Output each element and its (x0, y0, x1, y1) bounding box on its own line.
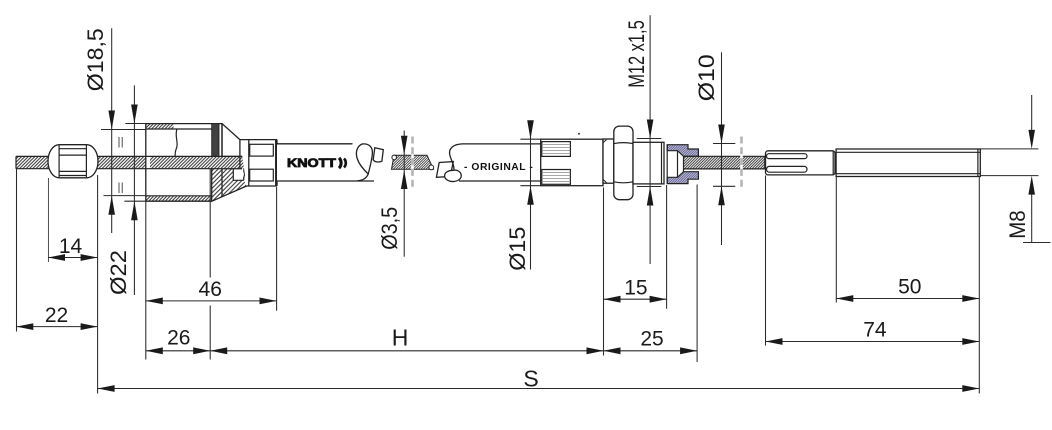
svg-text:S: S (523, 366, 538, 392)
svg-text:Ø10: Ø10 (694, 54, 719, 101)
svg-text:50: 50 (898, 276, 921, 299)
svg-text:Ø3,5: Ø3,5 (377, 207, 402, 250)
svg-text:46: 46 (199, 278, 222, 301)
svg-text:25: 25 (640, 328, 663, 351)
svg-text:22: 22 (45, 304, 68, 327)
svg-text:15: 15 (624, 277, 647, 300)
svg-text:Ø15: Ø15 (505, 227, 530, 271)
svg-text:- ORIGINAL -: - ORIGINAL - (464, 162, 533, 173)
svg-text:Ø18,5: Ø18,5 (83, 28, 108, 91)
svg-text:Ø22: Ø22 (106, 250, 131, 295)
svg-text:M12 x1,5: M12 x1,5 (624, 20, 649, 88)
svg-text:26: 26 (167, 327, 190, 350)
svg-text:74: 74 (863, 319, 887, 342)
svg-text:KNOTT: KNOTT (287, 156, 337, 170)
svg-text:14: 14 (59, 235, 83, 258)
svg-text:M8: M8 (1005, 210, 1030, 239)
svg-text:H: H (392, 325, 409, 351)
